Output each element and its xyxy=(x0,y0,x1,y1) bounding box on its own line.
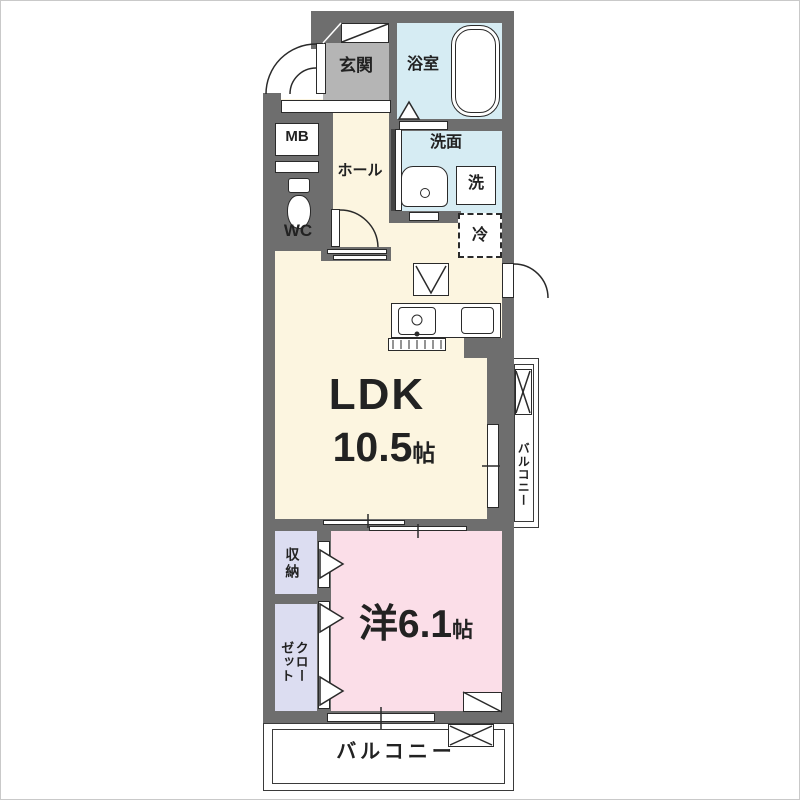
toilet-icon-tank xyxy=(288,178,310,193)
bedroom-size-unit: 帖 xyxy=(452,619,473,642)
washroom-label: 洗面 xyxy=(415,134,477,152)
hall-label: ホール xyxy=(329,163,391,180)
ldk-bedroom-slider-band-1 xyxy=(323,520,405,525)
ldk-bedroom-slider-band-2 xyxy=(369,526,467,531)
range-hood-icon xyxy=(413,263,449,296)
pipe-space-box xyxy=(275,161,319,173)
refrigerator-label: 冷 xyxy=(458,227,502,245)
kitchen-sink-icon xyxy=(398,307,436,335)
bath-door-opening xyxy=(399,121,448,130)
kitchen-cabinet-hatch xyxy=(388,338,446,351)
hall-ldk-slider-band-1 xyxy=(327,249,387,254)
washer-label: 洗 xyxy=(456,175,496,193)
closet-door-band xyxy=(318,601,330,709)
bottom-balcony-label: バルコニー xyxy=(301,741,491,763)
shoe-cabinet-icon-dark xyxy=(323,23,341,43)
entrance-door-swing-arc-large xyxy=(266,44,316,94)
bathtub-icon-inner xyxy=(455,29,496,113)
balcony-hatch-box-side xyxy=(515,369,532,415)
ldk-size-label: 10.5帖 xyxy=(294,425,474,470)
gas-range-icon xyxy=(461,307,494,334)
floor-plan: 玄関 浴室 MB ホール 洗面 洗 WC 冷 LDK 10.5帖 収納 クロー … xyxy=(0,0,800,800)
vanity-sink-icon xyxy=(401,166,448,207)
bedroom-window-south xyxy=(327,713,435,722)
closet-label: クロー ゼット xyxy=(279,621,308,703)
wall-right-bedroom xyxy=(502,519,514,723)
wall-right-upper xyxy=(502,11,514,263)
hall-ldk-slider-band-2 xyxy=(333,255,387,260)
service-door-swing-arc xyxy=(514,264,548,298)
wall-top xyxy=(311,11,514,23)
storage-label: 収納 xyxy=(284,538,299,590)
ldk-label: LDK xyxy=(301,371,453,419)
service-door-opening xyxy=(502,263,514,298)
bedroom-corner-box xyxy=(463,692,502,712)
ldk-size-value: 10.5 xyxy=(333,424,413,470)
meter-box-label: MB xyxy=(275,129,319,146)
bedroom-size-value: 洋6.1 xyxy=(359,603,452,646)
wall-entrance-bath-divider xyxy=(389,11,397,131)
entrance-label: 玄関 xyxy=(323,57,389,76)
bedroom-size-label: 洋6.1帖 xyxy=(331,604,501,647)
wc-label: WC xyxy=(275,222,321,241)
entrance-threshold xyxy=(281,100,391,113)
entrance-door-swing-arc-small xyxy=(290,68,316,94)
bathroom-label: 浴室 xyxy=(397,56,449,74)
side-balcony-label: バルコニー xyxy=(516,425,529,523)
hall-door-leaf xyxy=(331,209,340,247)
ldk-window-east xyxy=(487,424,499,508)
ldk-size-unit: 帖 xyxy=(412,440,435,466)
storage-door-band xyxy=(318,541,330,588)
shoe-cabinet-icon xyxy=(341,23,389,43)
washroom-mat xyxy=(409,212,439,221)
